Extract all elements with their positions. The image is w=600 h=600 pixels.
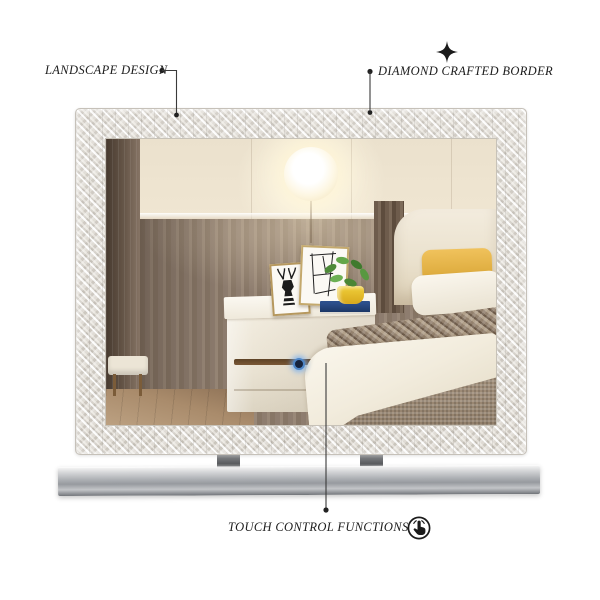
plant-pot (337, 286, 364, 304)
vanity-mirror (75, 108, 527, 455)
bench-leg (139, 374, 142, 396)
touch-control-label: TOUCH CONTROL FUNCTIONS (228, 520, 409, 535)
landscape-design-label: LANDSCAPE DESIGN (45, 63, 168, 78)
bench (108, 356, 148, 375)
wall-seam (451, 139, 452, 219)
mirror-glass (105, 138, 497, 426)
wall-seam (251, 139, 252, 219)
pendant-cord (310, 199, 312, 243)
stand-base (58, 465, 540, 496)
sparkle-icon (436, 41, 458, 63)
product-image: LANDSCAPE DESIGN DIAMOND CRAFTED BORDER … (0, 0, 600, 600)
wall-seam (351, 139, 352, 219)
diamond-border-label: DIAMOND CRAFTED BORDER (378, 64, 553, 79)
wardrobe-edge (106, 139, 140, 426)
bench-leg (113, 374, 116, 396)
pendant-light (284, 147, 338, 201)
touch-gesture-icon (408, 517, 429, 538)
touch-button (293, 358, 305, 370)
